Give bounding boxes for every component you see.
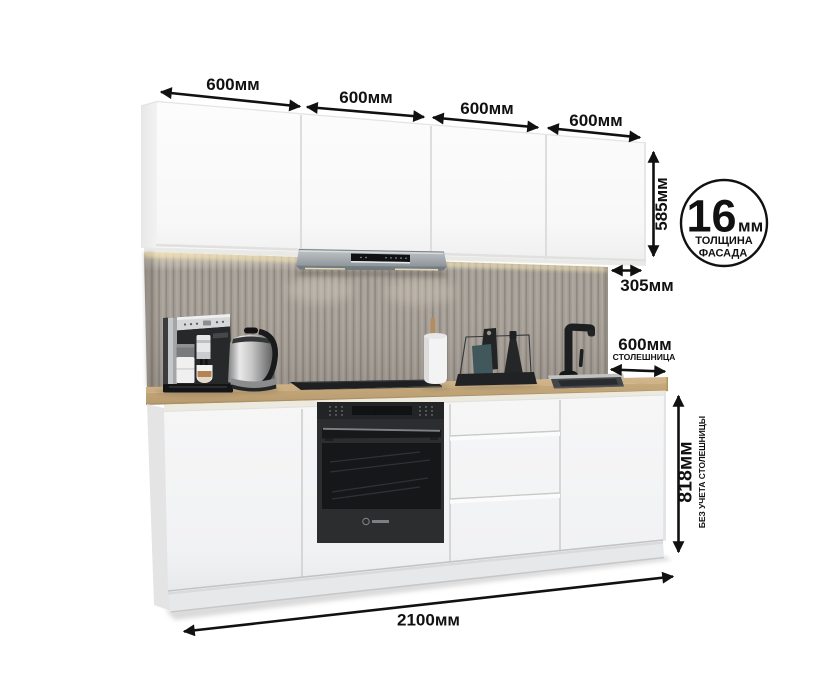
svg-text:600мм: 600мм <box>339 88 393 107</box>
svg-text:СТОЛЕШНИЦА: СТОЛЕШНИЦА <box>613 352 676 362</box>
svg-text:БЕЗ УЧЕТА СТОЛЕШНИЦЫ: БЕЗ УЧЕТА СТОЛЕШНИЦЫ <box>697 416 707 528</box>
svg-text:600мм: 600мм <box>460 99 514 118</box>
svg-text:585мм: 585мм <box>652 177 671 231</box>
svg-text:600мм: 600мм <box>206 75 260 94</box>
svg-text:мм: мм <box>738 217 763 236</box>
svg-text:2100мм: 2100мм <box>397 611 460 630</box>
svg-text:818мм: 818мм <box>675 441 697 502</box>
svg-text:15:30: 15:30 <box>374 408 391 415</box>
svg-text:ТОЛЩИНА: ТОЛЩИНА <box>695 235 753 247</box>
svg-text:305мм: 305мм <box>620 276 674 295</box>
svg-text:600мм: 600мм <box>569 111 623 130</box>
svg-text:16: 16 <box>686 191 736 242</box>
svg-text:ФАСАДА: ФАСАДА <box>699 248 748 260</box>
